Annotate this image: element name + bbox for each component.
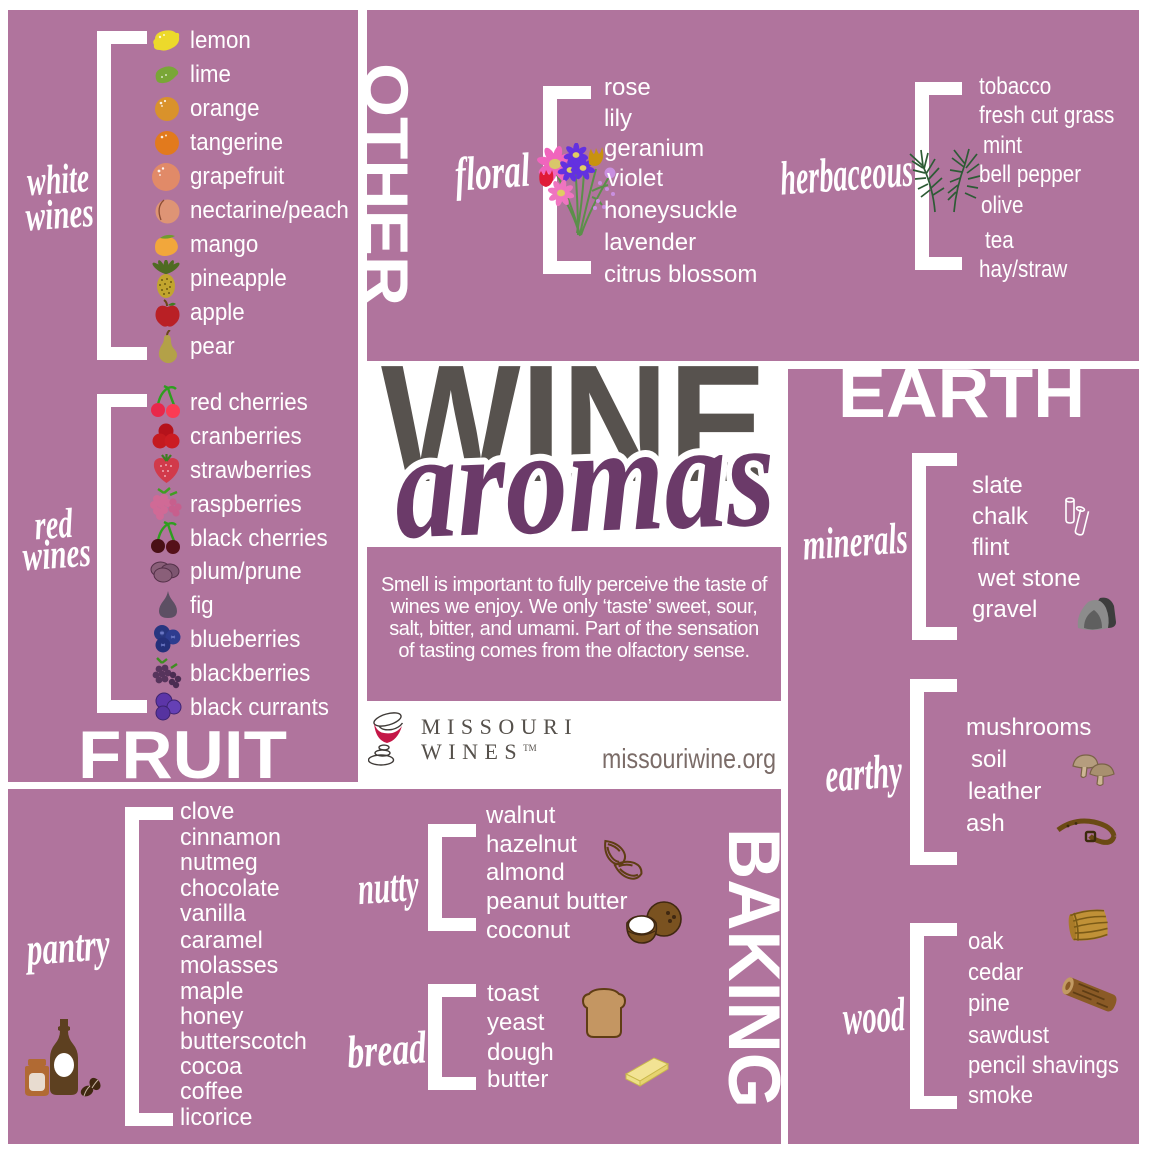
svg-text:earthy: earthy: [823, 744, 904, 802]
svg-text:FRUIT: FRUIT: [78, 717, 287, 785]
svg-text:nutty: nutty: [356, 859, 421, 914]
svg-text:wines: wines: [21, 530, 92, 581]
svg-text:wines: wines: [24, 190, 95, 240]
svg-text:minerals: minerals: [801, 513, 909, 565]
svg-text:BAKING: BAKING: [728, 828, 782, 1108]
svg-text:OTHER: OTHER: [363, 63, 419, 306]
svg-text:wood: wood: [841, 988, 907, 1040]
svg-text:pantry: pantry: [22, 918, 111, 975]
svg-text:bread: bread: [345, 1021, 428, 1070]
svg-text:aromas: aromas: [392, 420, 778, 565]
svg-text:EARTH: EARTH: [838, 360, 1085, 426]
svg-text:herbaceous: herbaceous: [778, 143, 914, 205]
svg-text:floral: floral: [453, 144, 532, 202]
svg-text:missouriwine.org: missouriwine.org: [602, 743, 776, 774]
